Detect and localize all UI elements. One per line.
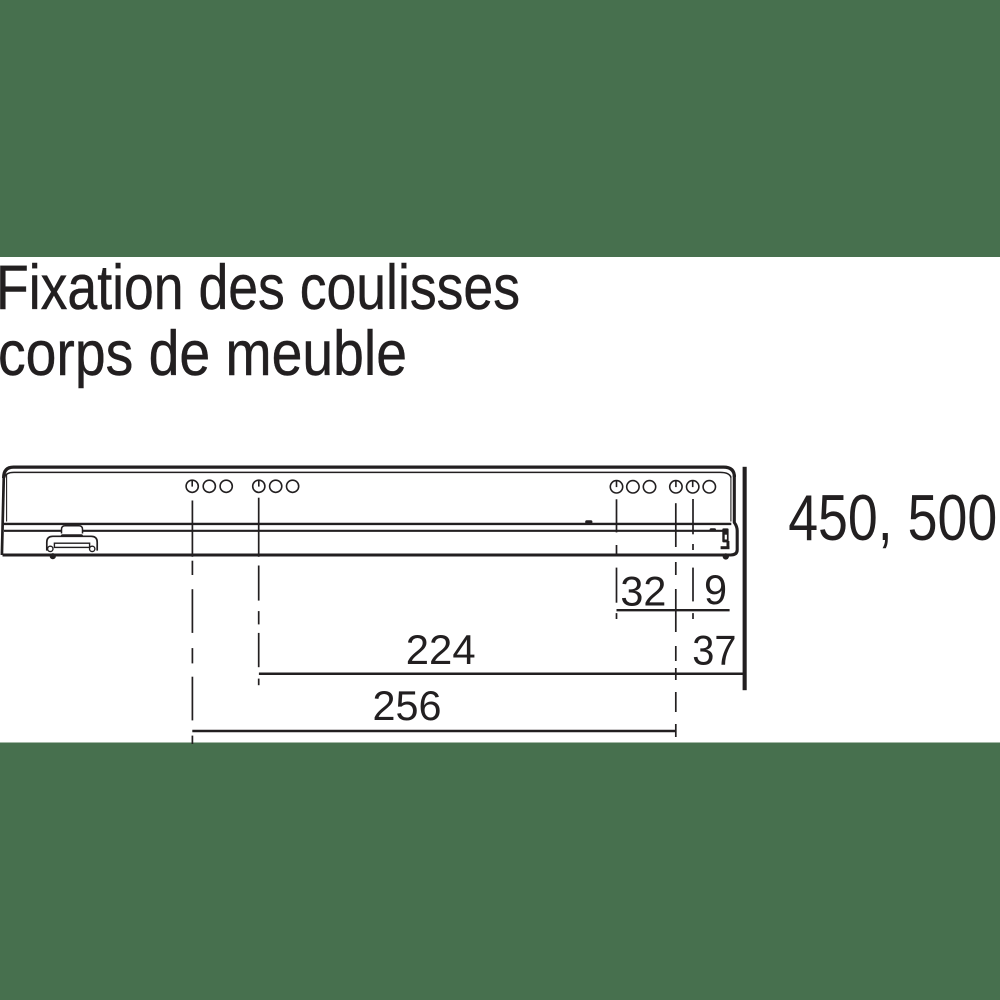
svg-text:224: 224 (406, 626, 476, 673)
svg-text:37: 37 (692, 626, 736, 673)
svg-text:9: 9 (704, 566, 727, 613)
svg-text:Fixation des coulisses: Fixation des coulisses (0, 253, 520, 323)
svg-text:256: 256 (373, 682, 442, 729)
svg-text:450, 500: 450, 500 (788, 481, 997, 554)
svg-text:32: 32 (620, 567, 666, 614)
svg-text:corps de meuble: corps de meuble (0, 319, 407, 389)
